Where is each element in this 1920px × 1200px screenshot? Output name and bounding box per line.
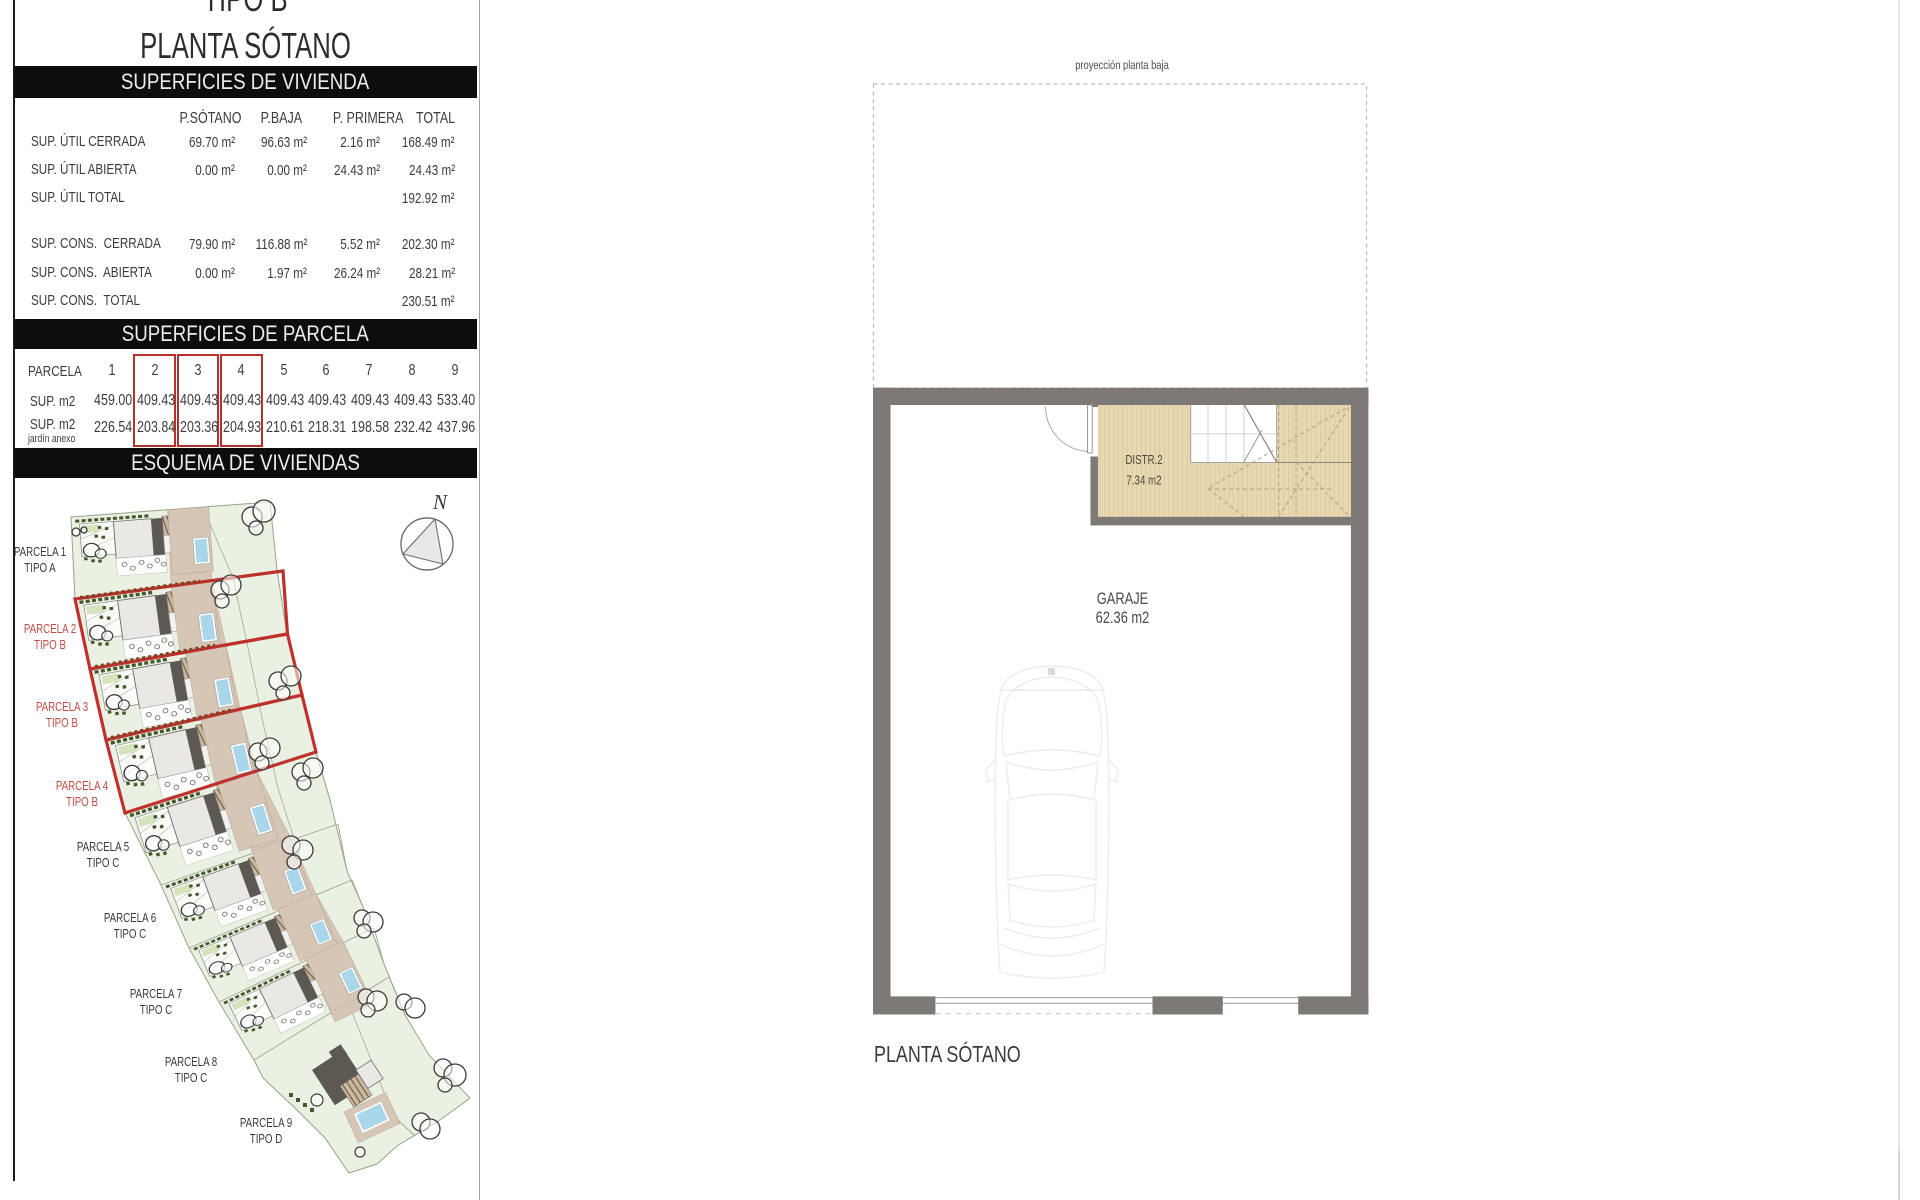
svg-text:7.34 m2: 7.34 m2 xyxy=(1126,474,1161,487)
svg-text:62.36 m2: 62.36 m2 xyxy=(1096,610,1150,628)
svg-text:PLANTA SÓTANO: PLANTA SÓTANO xyxy=(874,1042,1021,1068)
svg-text:GARAJE: GARAJE xyxy=(1097,591,1149,609)
svg-text:proyección planta baja: proyección planta baja xyxy=(1075,59,1169,72)
svg-text:DISTR.2: DISTR.2 xyxy=(1125,454,1162,467)
